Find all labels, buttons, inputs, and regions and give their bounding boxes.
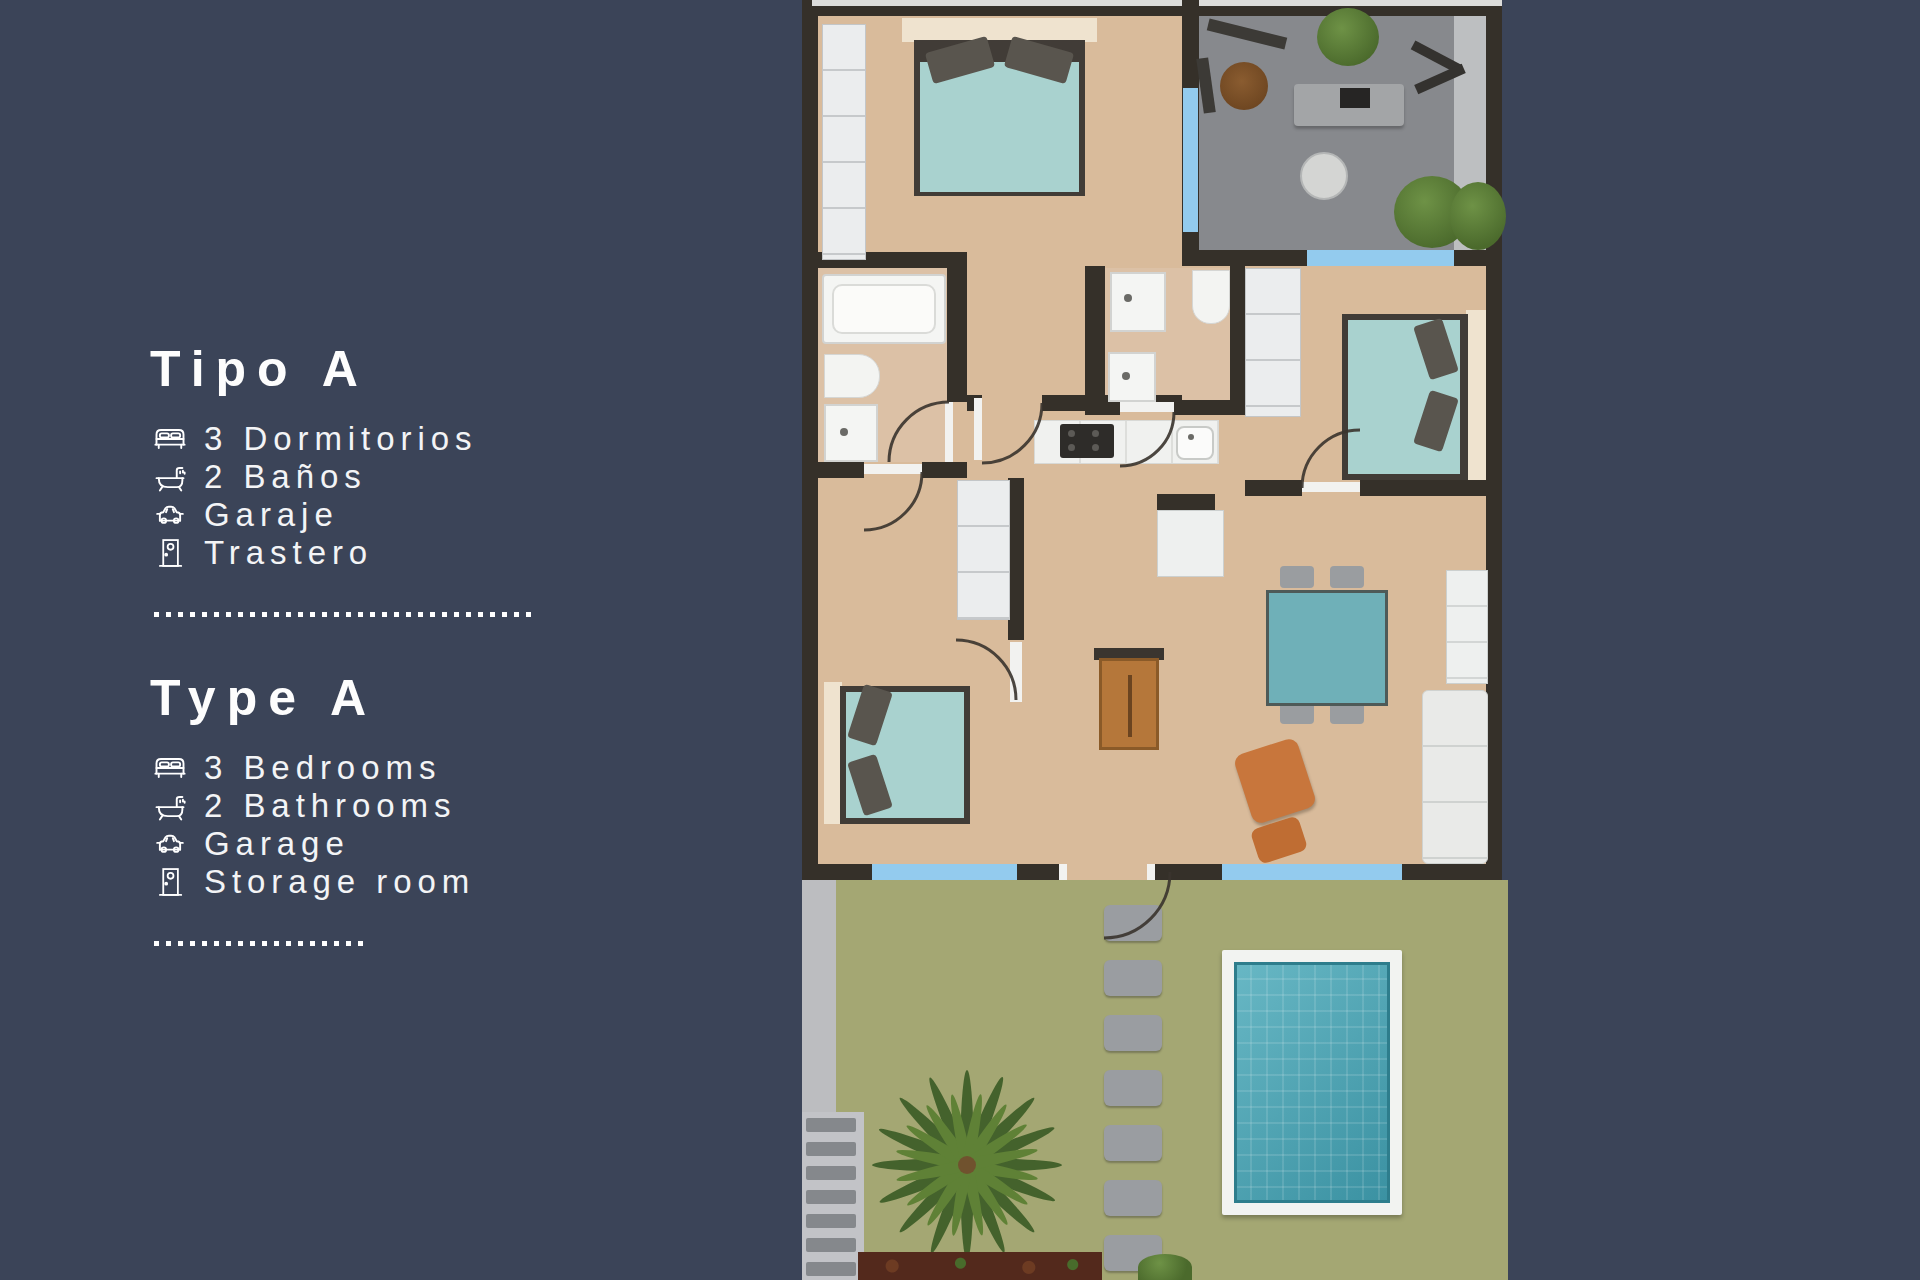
feature-item: Trastero — [150, 534, 710, 572]
floor-plan — [802, 0, 1508, 1280]
feature-item: Storage room — [150, 863, 710, 901]
feature-item: Garage — [150, 825, 710, 863]
dotted-separator — [154, 941, 366, 946]
bed-icon — [150, 421, 190, 457]
feature-label: Storage room — [204, 863, 475, 901]
flyer: Tipo A 3 Dormitorios — [0, 0, 1920, 1280]
section-title-es: Tipo A — [150, 340, 710, 398]
feature-item: 2 Baños — [150, 458, 710, 496]
feature-label: 2 Bathrooms — [204, 787, 456, 825]
door-arcs — [802, 0, 1508, 1280]
feature-label: Trastero — [204, 534, 373, 572]
door-icon — [150, 535, 190, 571]
feature-item: 3 Dormitorios — [150, 420, 710, 458]
feature-label: Garage — [204, 825, 350, 863]
feature-item: 2 Bathrooms — [150, 787, 710, 825]
feature-item: 3 Bedrooms — [150, 749, 710, 787]
feature-list-en: 3 Bedrooms 2 Bathrooms — [150, 749, 710, 901]
car-icon — [150, 497, 190, 533]
feature-label: Garaje — [204, 496, 339, 534]
info-panel: Tipo A 3 Dormitorios — [150, 340, 710, 946]
bath-icon — [150, 788, 190, 824]
door-icon — [150, 864, 190, 900]
feature-label: 3 Bedrooms — [204, 749, 441, 787]
feature-label: 2 Baños — [204, 458, 367, 496]
bed-icon — [150, 750, 190, 786]
car-icon — [150, 826, 190, 862]
feature-label: 3 Dormitorios — [204, 420, 477, 458]
section-title-en: Type A — [150, 669, 710, 727]
bath-icon — [150, 459, 190, 495]
feature-list-es: 3 Dormitorios 2 Baños — [150, 420, 710, 572]
feature-item: Garaje — [150, 496, 710, 534]
